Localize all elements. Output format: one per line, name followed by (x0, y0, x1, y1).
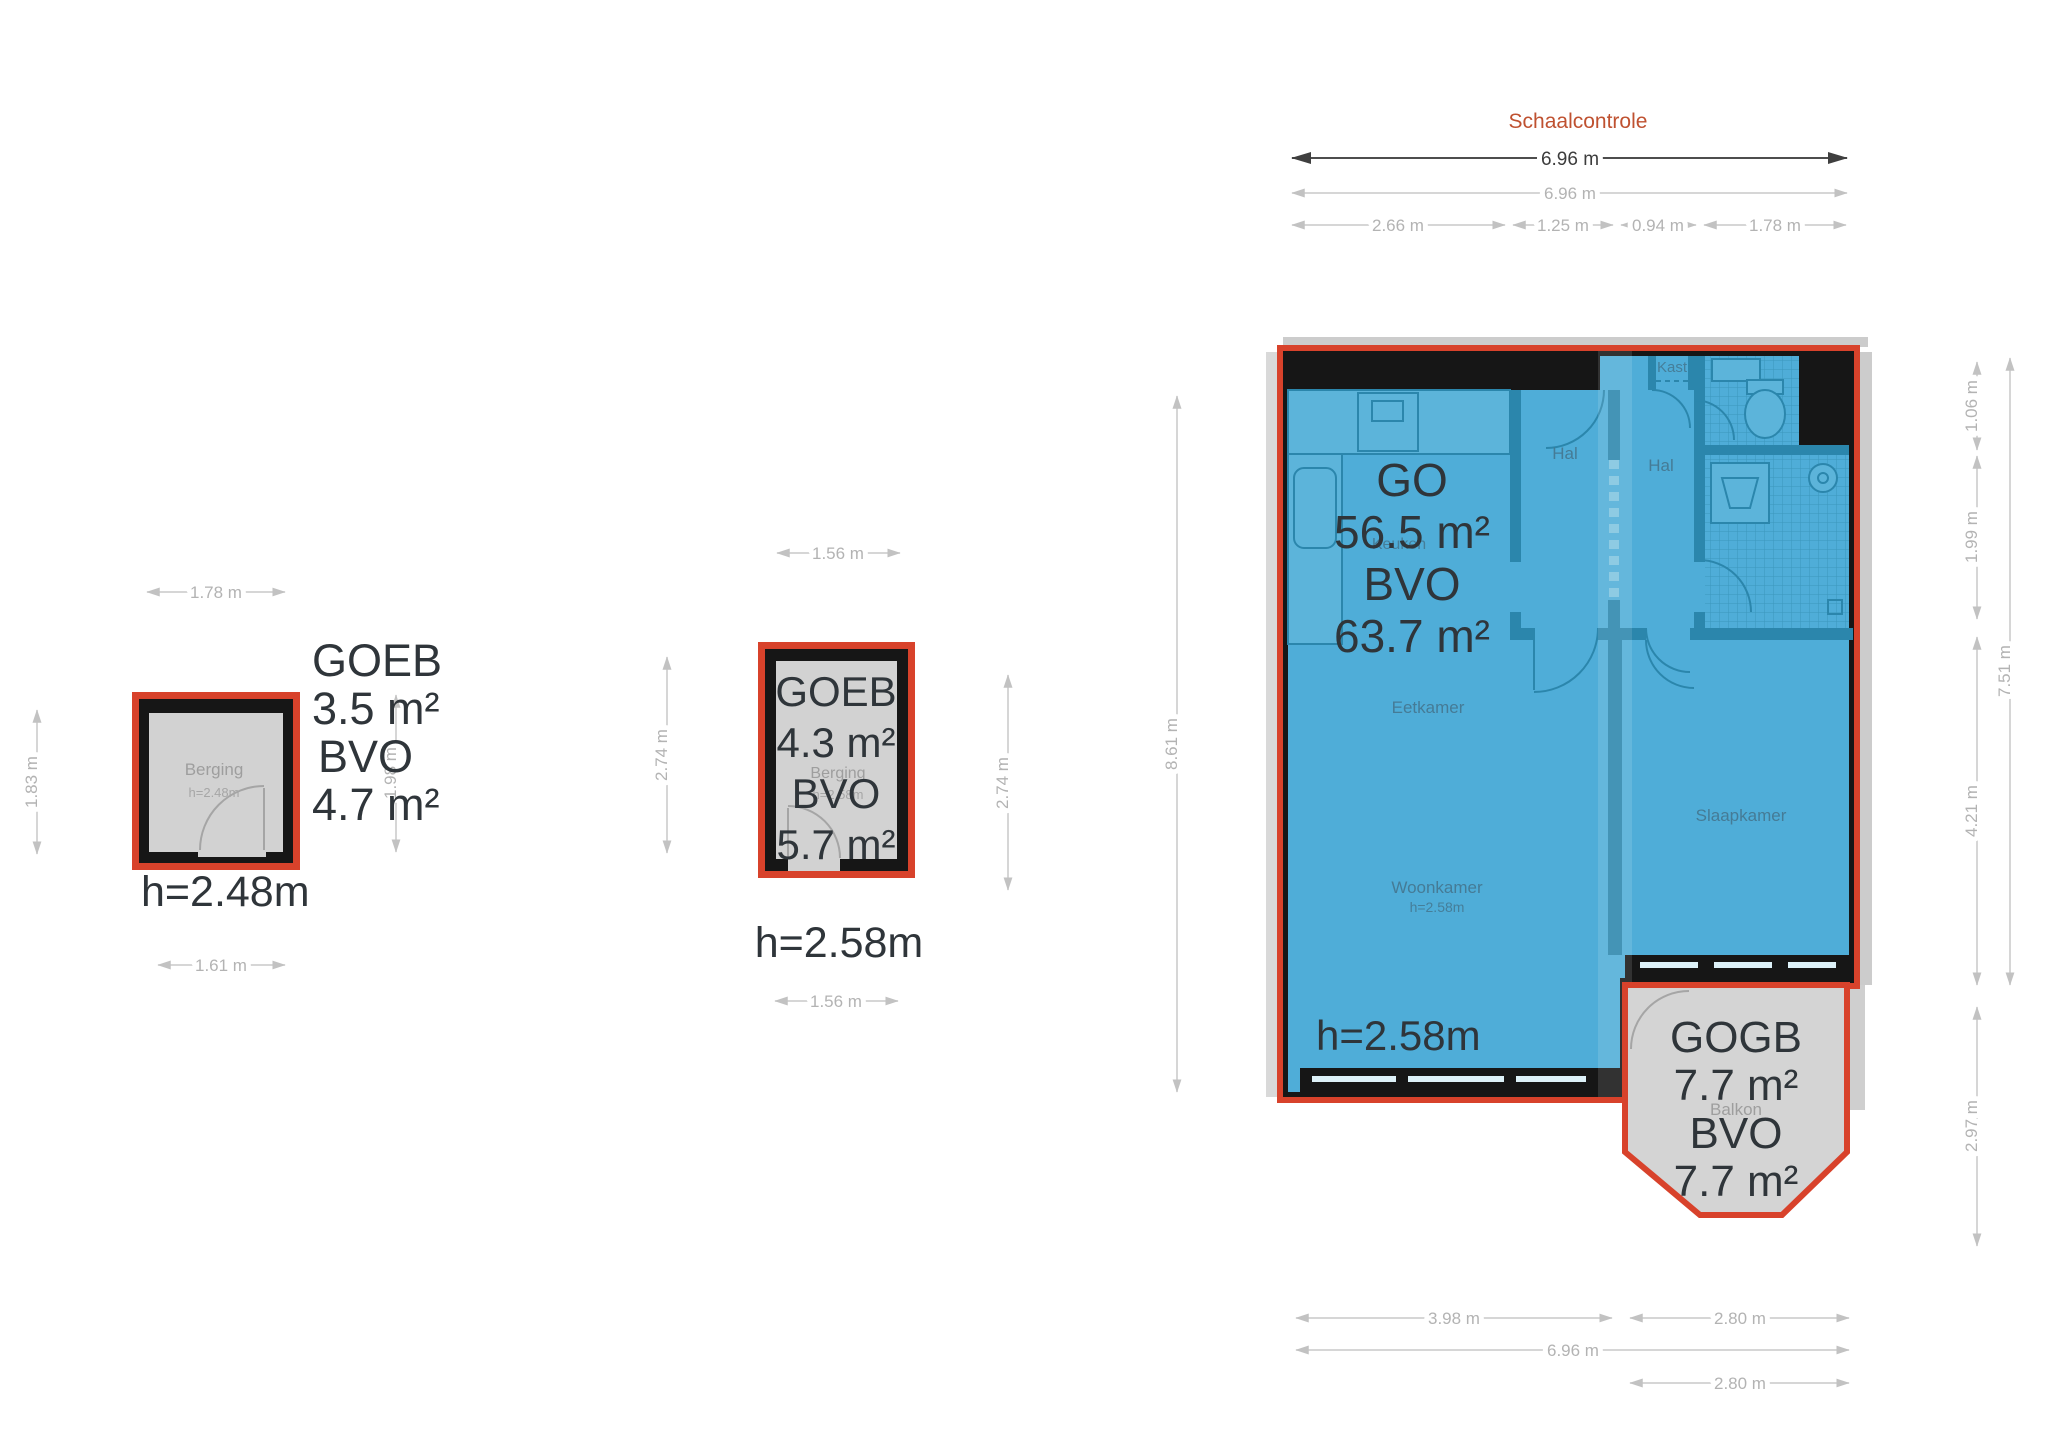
goeb-goeb-label: GOEB (775, 668, 896, 715)
dim-3-98: 3.98 m (1428, 1309, 1480, 1328)
goeb-ceiling-height: h=2.58m (755, 919, 924, 967)
dim-1-06: 1.06 m (1962, 380, 1981, 432)
berging-dim-bottom-label: 1.61 m (195, 956, 247, 975)
berging-ceiling-height: h=2.48m (141, 868, 310, 916)
dim-2-80-upper: 2.80 m (1714, 1309, 1766, 1328)
apartment-dim-top-dark-label: 6.96 m (1541, 149, 1599, 170)
bottom-window-band (1300, 1068, 1622, 1092)
berging-dim-top: 1.78 m (147, 583, 285, 602)
round-basin-icon (1809, 464, 1837, 492)
berging-dim-left-label: 1.83 m (22, 756, 41, 808)
berging-plan: 1.78 m 1.83 m 1.98 m Berging h=2.48m GOE… (22, 583, 442, 975)
balcony-bay: Balkon GOGB 7.7 m² BVO 7.7 m² (1625, 985, 1847, 1215)
dim-6-96-bottom: 6.96 m (1547, 1341, 1599, 1360)
apartment-go-label: GO (1376, 454, 1448, 506)
berging-bvo-value: 4.7 m² (312, 779, 440, 830)
balcony-gogb-label: GOGB (1670, 1013, 1802, 1062)
apartment-bvo-label: BVO (1363, 558, 1460, 610)
dim-4-21: 4.21 m (1962, 785, 1981, 837)
balcony-bvo-value: 7.7 m² (1674, 1157, 1799, 1206)
dim-2-97: 2.97 m (1962, 1100, 1981, 1152)
goeb-dim-right-label: 2.74 m (993, 757, 1012, 809)
apartment-bvo-value: 63.7 m² (1334, 610, 1490, 662)
apartment-plan: Schaalcontrole 6.96 m 6.96 m 2.66 m 1.25… (1162, 110, 2014, 1393)
balcony-shadow-right (1849, 985, 1865, 1110)
dim-7-51: 7.51 m (1995, 645, 2014, 697)
goeb-goeb-value: 4.3 m² (776, 719, 895, 766)
toilet-icon (1745, 390, 1785, 438)
berging-room-shape: Berging h=2.48m (132, 692, 300, 870)
dim-seg-1-78: 1.78 m (1749, 216, 1801, 235)
bedroom-window-band (1625, 955, 1849, 978)
dim-seg-0-94: 0.94 m (1632, 216, 1684, 235)
berging-dim-top-label: 1.78 m (190, 583, 242, 602)
berging-floor (149, 713, 283, 852)
apartment-dim-top-gray-label: 6.96 m (1544, 184, 1596, 203)
washing-machine-icon (1711, 463, 1769, 523)
apartment-ceiling-height: h=2.58m (1316, 1012, 1481, 1059)
balcony-area-labels: GOGB 7.7 m² BVO 7.7 m² (1670, 1013, 1802, 1206)
berging-goeb-label: GOEB (312, 635, 442, 686)
apartment-go-value: 56.5 m² (1334, 506, 1490, 558)
goeb-dim-bottom: 1.56 m (775, 992, 898, 1011)
apartment-dim-left: 8.61 m (1162, 396, 1181, 1092)
balcony-bvo-label: BVO (1690, 1109, 1783, 1158)
berging-goeb-value: 3.5 m² (312, 683, 440, 734)
apartment-dim-top-segments: 2.66 m 1.25 m 0.94 m 1.78 m (1292, 216, 1846, 235)
washbasin-icon (1712, 359, 1760, 381)
berging-room-height: h=2.48m (189, 785, 240, 800)
top-left-wall-band (1288, 356, 1600, 390)
dim-seg-1-25: 1.25 m (1537, 216, 1589, 235)
goeb-dim-top: 1.56 m (777, 544, 900, 563)
apartment-dim-top-gray: 6.96 m (1292, 184, 1847, 203)
goeb-plan: 1.56 m 2.74 m 2.74 m Berging h=2.58m GOE… (652, 544, 1012, 1011)
dim-1-99: 1.99 m (1962, 511, 1981, 563)
goeb-dim-bottom-label: 1.56 m (810, 992, 862, 1011)
goeb-dim-right: 2.74 m (993, 675, 1012, 890)
floorplan-page: 1.78 m 1.83 m 1.98 m Berging h=2.48m GOE… (0, 0, 2048, 1448)
dim-2-80-lower: 2.80 m (1714, 1374, 1766, 1393)
goeb-dim-top-label: 1.56 m (812, 544, 864, 563)
top-right-shaft (1799, 356, 1849, 452)
floorplan-drawing: 1.78 m 1.83 m 1.98 m Berging h=2.48m GOE… (0, 0, 2048, 1448)
apartment-dim-right: 1.06 m 1.99 m 4.21 m 2.97 m 7.51 m (1962, 358, 2014, 1246)
dim-seg-2-66: 2.66 m (1372, 216, 1424, 235)
room-closet-label: Kast (1657, 359, 1688, 376)
page-title: Schaalcontrole (1509, 110, 1648, 133)
goeb-bvo-value: 5.7 m² (776, 821, 895, 868)
room-hall1-label: Hal (1552, 444, 1578, 463)
plan-shadow-left (1266, 352, 1277, 1097)
room-living-label: Woonkamer (1391, 878, 1483, 897)
dim-8-61: 8.61 m (1162, 718, 1181, 770)
room-dining-label: Eetkamer (1392, 698, 1465, 717)
room-hall2-label: Hal (1648, 456, 1674, 475)
goeb-bvo-label: BVO (792, 770, 881, 817)
berging-dim-left: 1.83 m (22, 710, 41, 854)
plan-shadow-right (1860, 352, 1872, 985)
berging-dim-bottom: 1.61 m (158, 956, 285, 975)
room-living-height-label: h=2.58m (1410, 899, 1465, 915)
goeb-dim-left-label: 2.74 m (652, 729, 671, 781)
berging-room-name: Berging (185, 760, 244, 779)
balcony-gogb-value: 7.7 m² (1674, 1061, 1799, 1110)
room-bedroom-label: Slaapkamer (1696, 806, 1787, 825)
apartment-dim-top-dark: 6.96 m (1292, 149, 1847, 170)
berging-bvo-label: BVO (318, 731, 413, 782)
goeb-room-shape: Berging h=2.58m GOEB 4.3 m² BVO 5.7 m² (758, 642, 915, 878)
goeb-dim-left: 2.74 m (652, 657, 671, 853)
berging-door-opening (198, 845, 266, 857)
apartment-dim-bottom: 3.98 m 2.80 m 6.96 m 2.80 m (1296, 1309, 1849, 1393)
